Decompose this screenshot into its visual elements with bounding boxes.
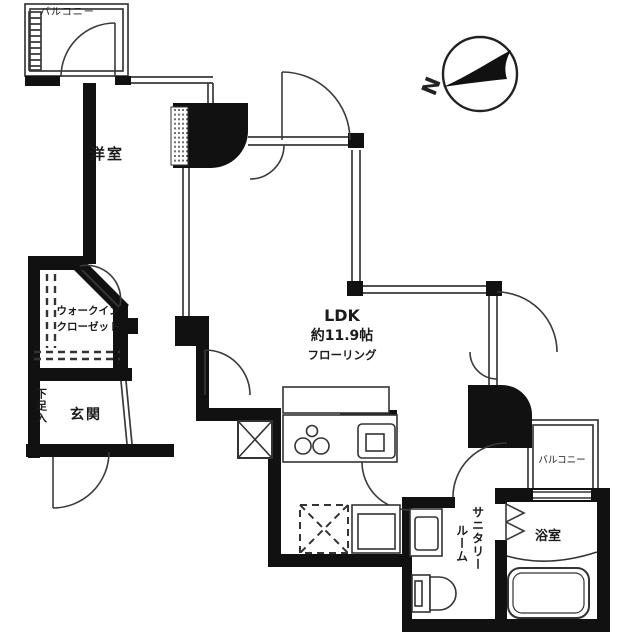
ldk-window-east-top xyxy=(363,286,486,293)
walk-in-closet-label-line1: ウォークイン xyxy=(52,306,124,317)
bathtub-icon xyxy=(508,568,589,618)
compass-needle xyxy=(443,50,511,87)
door-entrance xyxy=(53,452,109,508)
kitchen-counter xyxy=(283,415,397,462)
bathroom-curve xyxy=(507,552,597,561)
kitchen-shelf xyxy=(283,387,389,413)
door-west-room-ldk xyxy=(250,72,350,179)
door-balcony-top xyxy=(61,23,115,77)
ldk-window-east xyxy=(489,296,497,385)
bathroom-window xyxy=(533,490,591,500)
pillar-south xyxy=(468,385,532,448)
shoe-cabinet-label: 下足入 xyxy=(35,388,47,424)
ldk-label: LDK xyxy=(312,308,372,325)
wall-top-thin xyxy=(131,77,213,103)
pillar-dotted-strip xyxy=(171,107,188,165)
ldk-size-label: 約11.9帖 xyxy=(297,329,387,344)
washbasin-icon xyxy=(410,509,442,556)
pipe-space-icon xyxy=(238,421,272,458)
folding-door-bathroom-icon xyxy=(506,504,524,540)
door-hall-ldk xyxy=(205,350,250,395)
compass-icon: N xyxy=(417,37,517,111)
washer-icon xyxy=(352,505,400,553)
entrance-label: 玄関 xyxy=(70,408,102,423)
sanitary-room-label-line1: サニタリー xyxy=(471,506,484,571)
balcony-top-left-label: バルコニー xyxy=(40,8,95,19)
refrigerator-space-icon xyxy=(300,505,348,553)
wic-diagonal-wall xyxy=(76,262,124,310)
toilet-icon xyxy=(412,575,456,612)
door-ldk-east xyxy=(470,292,557,379)
sink-icon xyxy=(358,424,395,458)
wall-upper-mid xyxy=(248,137,352,145)
ldk-window-north xyxy=(352,150,360,284)
bathroom-label: 浴室 xyxy=(526,530,570,544)
walk-in-closet-label-line2: クローゼット xyxy=(52,322,124,333)
compass-north-label: N xyxy=(417,73,446,98)
partition-west-room xyxy=(183,168,189,318)
ldk-floor-label: フローリング xyxy=(300,349,384,361)
entrance-step-line xyxy=(121,381,132,444)
balcony-right-label: バルコニー xyxy=(531,456,593,466)
floor-plan: N バルコニー 洋室 ウォークイン クローゼット 下足入 玄関 LDK 約11.… xyxy=(0,0,640,632)
western-room-label: 洋室 xyxy=(90,147,124,163)
sanitary-room-label-line2: ルーム xyxy=(455,524,468,563)
